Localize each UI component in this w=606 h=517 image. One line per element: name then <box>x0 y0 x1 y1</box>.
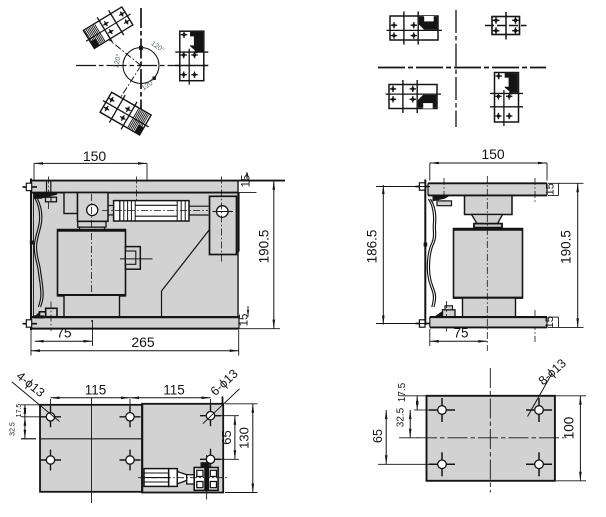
svg-text:150: 150 <box>481 146 505 162</box>
svg-text:15: 15 <box>544 316 556 328</box>
svg-text:15: 15 <box>545 183 557 195</box>
svg-text:15: 15 <box>239 314 251 327</box>
svg-text:65: 65 <box>371 429 385 443</box>
svg-text:32.5: 32.5 <box>395 407 406 427</box>
svg-text:17.5: 17.5 <box>397 382 408 402</box>
svg-text:65: 65 <box>219 430 234 444</box>
svg-text:115: 115 <box>85 382 107 397</box>
svg-text:150: 150 <box>83 148 107 164</box>
svg-text:186.5: 186.5 <box>364 230 379 264</box>
svg-text:265: 265 <box>131 334 155 350</box>
svg-text:75: 75 <box>453 326 468 341</box>
svg-text:190.5: 190.5 <box>559 230 574 264</box>
svg-text:75: 75 <box>56 326 71 341</box>
svg-text:17.5: 17.5 <box>16 404 23 418</box>
svg-text:115: 115 <box>163 382 185 397</box>
svg-text:32.5: 32.5 <box>9 422 16 436</box>
svg-text:100: 100 <box>562 417 577 440</box>
svg-text:190.5: 190.5 <box>257 230 272 264</box>
svg-text:130: 130 <box>237 427 252 449</box>
